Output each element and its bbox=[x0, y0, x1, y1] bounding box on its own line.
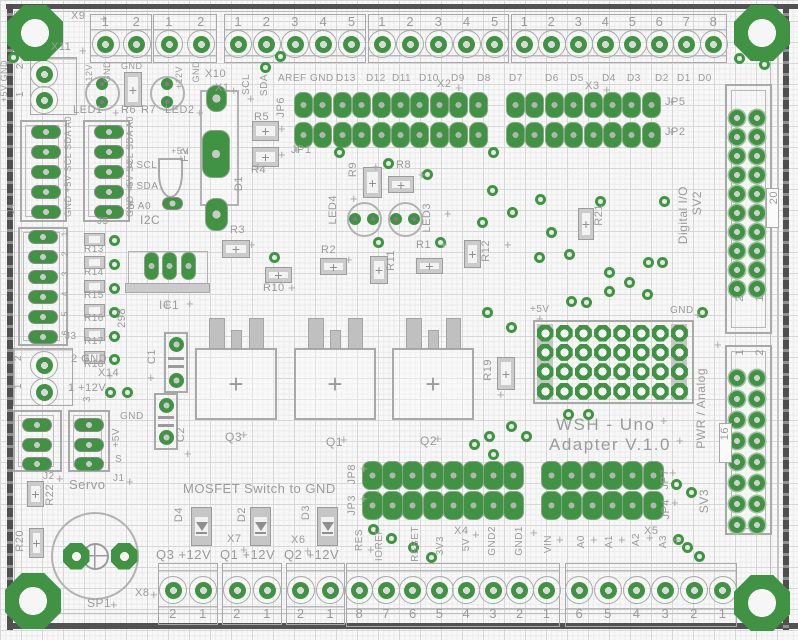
pin-number: 8 bbox=[707, 15, 721, 28]
via-pad[interactable] bbox=[109, 354, 120, 365]
header-pad[interactable] bbox=[582, 491, 603, 520]
capacitor-pad[interactable] bbox=[159, 430, 174, 445]
origin-cross-marker: + bbox=[440, 238, 448, 251]
via-pad[interactable] bbox=[686, 487, 697, 498]
header-pad[interactable] bbox=[622, 92, 641, 118]
connector-pad[interactable] bbox=[28, 250, 58, 264]
connector-pad[interactable] bbox=[31, 125, 61, 139]
via-pad[interactable] bbox=[109, 235, 120, 246]
resistor[interactable]: + bbox=[27, 481, 44, 507]
origin-cross-marker: + bbox=[56, 472, 64, 485]
resistor[interactable]: + bbox=[320, 258, 347, 275]
header-pad[interactable] bbox=[545, 92, 564, 118]
via-pad[interactable] bbox=[487, 185, 498, 196]
header-pad[interactable] bbox=[313, 92, 332, 118]
header-pad[interactable] bbox=[333, 92, 352, 118]
header-pad[interactable] bbox=[642, 122, 661, 148]
connector-pad[interactable] bbox=[28, 270, 58, 284]
header-pad[interactable] bbox=[372, 122, 391, 148]
silk-label: J2 bbox=[43, 472, 55, 482]
connector-pin-pad[interactable] bbox=[749, 454, 765, 470]
via-pad[interactable] bbox=[109, 259, 120, 270]
resistor[interactable]: + bbox=[222, 240, 250, 258]
connector-pin-pad[interactable] bbox=[729, 517, 745, 533]
silk-label: J3 bbox=[65, 332, 77, 342]
silk-label: R5 bbox=[254, 112, 269, 123]
pin-number: 2 bbox=[545, 15, 559, 28]
silk-label: Q2 bbox=[420, 435, 437, 447]
connector-pin-pad[interactable] bbox=[729, 129, 745, 145]
capacitor-pad[interactable] bbox=[169, 337, 184, 352]
terminal-pad[interactable] bbox=[123, 30, 151, 58]
connector-pin-pad[interactable] bbox=[749, 224, 765, 240]
header-pad[interactable] bbox=[443, 461, 464, 490]
capacitor-plate bbox=[168, 357, 184, 361]
header-pad[interactable] bbox=[642, 92, 661, 118]
pin-number: 1 bbox=[518, 15, 532, 28]
via-pad[interactable] bbox=[386, 533, 397, 544]
terminal-pad[interactable] bbox=[481, 30, 509, 58]
resistor[interactable]: + bbox=[124, 72, 142, 107]
terminal-pad[interactable] bbox=[623, 576, 651, 604]
via-pad[interactable] bbox=[566, 296, 577, 307]
silk-label: 1 bbox=[16, 91, 26, 97]
connector-pin-pad[interactable] bbox=[749, 186, 765, 202]
silk-label: D6 bbox=[545, 74, 559, 84]
pin-number: 4 bbox=[459, 607, 473, 620]
header-pad[interactable] bbox=[506, 122, 525, 148]
header-pad[interactable] bbox=[503, 491, 524, 520]
connector-pin-pad[interactable] bbox=[749, 391, 765, 407]
capacitor-plate bbox=[168, 365, 184, 369]
silk-label: R17 bbox=[84, 337, 104, 347]
header-pad[interactable] bbox=[603, 122, 622, 148]
terminal-pad[interactable] bbox=[426, 576, 454, 604]
diode[interactable] bbox=[191, 507, 212, 546]
via-pad[interactable] bbox=[624, 277, 635, 288]
via-pad[interactable] bbox=[734, 53, 745, 64]
led-pad[interactable] bbox=[408, 213, 420, 225]
header-pad[interactable] bbox=[561, 461, 582, 490]
mosfet-note: MOSFET Switch to GND bbox=[183, 482, 336, 495]
via-pad[interactable] bbox=[506, 322, 517, 333]
silk-label: X8 bbox=[135, 588, 149, 599]
header-pad[interactable] bbox=[469, 92, 488, 118]
terminal-pad[interactable] bbox=[338, 30, 366, 58]
transistor-package[interactable]: + bbox=[392, 348, 474, 420]
terminal-pad[interactable] bbox=[287, 576, 315, 604]
header-pad[interactable] bbox=[503, 461, 524, 490]
resistor[interactable]: + bbox=[464, 240, 481, 268]
terminal-pad[interactable] bbox=[399, 576, 427, 604]
terminal-pad[interactable] bbox=[700, 30, 728, 58]
header-pad[interactable] bbox=[622, 461, 643, 490]
pin-number: 4 bbox=[316, 15, 330, 28]
terminal-pad[interactable] bbox=[187, 30, 215, 58]
diode[interactable] bbox=[250, 507, 271, 546]
terminal-pad[interactable] bbox=[506, 576, 534, 604]
pin-number: 2 bbox=[230, 607, 244, 620]
terminal-pad[interactable] bbox=[30, 86, 58, 114]
silk-label: 16 bbox=[720, 427, 731, 440]
via-pad[interactable] bbox=[373, 237, 384, 248]
connector-pin-pad[interactable] bbox=[749, 205, 765, 221]
silk-label: D5 bbox=[570, 74, 584, 84]
silk-label: SDA bbox=[260, 74, 270, 96]
header-pad[interactable] bbox=[402, 461, 423, 490]
header-pad[interactable] bbox=[622, 491, 643, 520]
header-pad[interactable] bbox=[391, 92, 410, 118]
terminal-pad[interactable] bbox=[155, 30, 183, 58]
silk-label: 2 bbox=[735, 295, 746, 302]
via-pad[interactable] bbox=[682, 542, 693, 553]
via-pad[interactable] bbox=[488, 147, 499, 158]
connector-pin-pad[interactable] bbox=[749, 475, 765, 491]
origin-cross-marker: + bbox=[603, 83, 611, 96]
pin-number: 7 bbox=[680, 15, 694, 28]
header-pad[interactable] bbox=[469, 122, 488, 148]
connector-outline[interactable] bbox=[18, 227, 68, 346]
connector-pad[interactable] bbox=[31, 165, 61, 179]
silk-label: SV3 bbox=[698, 489, 710, 513]
silk-label: D4 bbox=[174, 507, 185, 522]
connector-pin-pad[interactable] bbox=[749, 110, 765, 126]
connector-pad[interactable] bbox=[28, 330, 58, 344]
pin-number: 1 bbox=[540, 607, 554, 620]
silk-label: IOREF bbox=[375, 528, 385, 561]
via-pad[interactable] bbox=[383, 158, 394, 169]
via-pad[interactable] bbox=[604, 286, 615, 297]
via-pad[interactable] bbox=[122, 387, 133, 398]
led-pad[interactable] bbox=[161, 78, 173, 90]
terminal-pad[interactable] bbox=[594, 576, 622, 604]
connector-pin-pad[interactable] bbox=[729, 148, 745, 164]
terminal-pad[interactable] bbox=[92, 30, 120, 58]
silk-label: X7 bbox=[227, 534, 241, 545]
connector-pin-pad[interactable] bbox=[749, 243, 765, 259]
origin-cross-marker: + bbox=[444, 207, 452, 220]
via-pad[interactable] bbox=[657, 257, 668, 268]
connector-pad[interactable] bbox=[94, 145, 124, 159]
led-pad[interactable] bbox=[390, 213, 402, 225]
terminal-pad[interactable] bbox=[646, 30, 674, 58]
connector-pin-pad[interactable] bbox=[729, 243, 745, 259]
pin-number: 1 bbox=[716, 607, 730, 620]
resistor[interactable]: + bbox=[388, 176, 414, 193]
silk-label: 2 bbox=[61, 251, 70, 257]
resistor[interactable]: + bbox=[29, 528, 44, 558]
header-pad[interactable] bbox=[333, 122, 352, 148]
header-pad[interactable] bbox=[602, 491, 623, 520]
header-pad[interactable] bbox=[449, 92, 468, 118]
connector-pad[interactable] bbox=[28, 230, 58, 244]
terminal-pad[interactable] bbox=[453, 30, 481, 58]
terminal-pad[interactable] bbox=[619, 30, 647, 58]
terminal-pad[interactable] bbox=[30, 351, 58, 379]
connector-pin-pad[interactable] bbox=[729, 475, 745, 491]
pin-number: 2 bbox=[130, 15, 144, 28]
connector-pad[interactable] bbox=[28, 290, 58, 304]
via-pad[interactable] bbox=[546, 227, 557, 238]
header-pad[interactable] bbox=[382, 491, 403, 520]
connector-pad[interactable] bbox=[22, 418, 52, 432]
silk-label: X6 bbox=[291, 535, 305, 546]
transistor-leg bbox=[330, 330, 341, 349]
origin-cross-marker: + bbox=[660, 414, 668, 427]
via-pad[interactable] bbox=[275, 51, 286, 62]
silk-label: D2 bbox=[237, 507, 248, 522]
connector-pad[interactable] bbox=[31, 205, 61, 219]
terminal-pad[interactable] bbox=[673, 30, 701, 58]
silk-label: R3 bbox=[230, 225, 245, 236]
silk-label: S bbox=[115, 455, 122, 465]
connector-pad[interactable] bbox=[94, 185, 124, 199]
header-pad[interactable] bbox=[391, 122, 410, 148]
pin-number: 2 bbox=[194, 15, 208, 28]
connector-pad[interactable] bbox=[74, 457, 104, 471]
via-pad[interactable] bbox=[671, 479, 682, 490]
via-pad[interactable] bbox=[334, 147, 345, 158]
header-pad[interactable] bbox=[463, 461, 484, 490]
header-pad[interactable] bbox=[423, 491, 444, 520]
header-pad[interactable] bbox=[352, 122, 371, 148]
connector-pad[interactable] bbox=[22, 438, 52, 452]
silk-label: R8 bbox=[396, 160, 411, 171]
via-pad[interactable] bbox=[659, 196, 670, 207]
connector-pin-pad[interactable] bbox=[729, 167, 745, 183]
header-pad[interactable] bbox=[602, 461, 623, 490]
fuse-pad[interactable] bbox=[205, 198, 228, 231]
via-pad[interactable] bbox=[109, 283, 120, 294]
ic-pad[interactable] bbox=[162, 252, 177, 280]
connector-pin-pad[interactable] bbox=[729, 186, 745, 202]
terminal-pad[interactable] bbox=[533, 576, 561, 604]
via-pad[interactable] bbox=[109, 331, 120, 342]
connector-pin-pad[interactable] bbox=[749, 412, 765, 428]
resistor[interactable]: + bbox=[252, 121, 279, 141]
capacitor-pad[interactable] bbox=[159, 398, 174, 413]
via-pad[interactable] bbox=[534, 252, 545, 263]
ic-pad[interactable] bbox=[181, 252, 196, 280]
via-pad[interactable] bbox=[507, 207, 518, 218]
silk-label: D2 bbox=[655, 74, 669, 84]
header-pad[interactable] bbox=[564, 122, 583, 148]
terminal-pad[interactable] bbox=[709, 576, 737, 604]
header-pad[interactable] bbox=[525, 92, 544, 118]
header-pad[interactable] bbox=[582, 461, 603, 490]
terminal-pad[interactable] bbox=[253, 576, 281, 604]
component-pad[interactable] bbox=[162, 197, 183, 210]
connector-pad[interactable] bbox=[28, 310, 58, 324]
origin-cross-marker: + bbox=[694, 308, 702, 321]
terminal-pad[interactable] bbox=[538, 30, 566, 58]
header-pad[interactable] bbox=[423, 461, 444, 490]
led-pad[interactable] bbox=[349, 213, 361, 225]
via-pad[interactable] bbox=[535, 194, 546, 205]
header-pad[interactable] bbox=[483, 461, 504, 490]
header-pad[interactable] bbox=[541, 461, 562, 490]
header-pad[interactable] bbox=[430, 122, 449, 148]
led-pad[interactable] bbox=[367, 213, 379, 225]
connector-pad[interactable] bbox=[74, 418, 104, 432]
terminal-pad[interactable] bbox=[159, 576, 187, 604]
connector-pin-pad[interactable] bbox=[749, 129, 765, 145]
via-pad[interactable] bbox=[581, 297, 592, 308]
via-pad[interactable] bbox=[604, 267, 615, 278]
connector-pin-pad[interactable] bbox=[749, 370, 765, 386]
header-pad[interactable] bbox=[294, 92, 313, 118]
via-pad[interactable] bbox=[694, 551, 705, 562]
header-pad[interactable] bbox=[410, 122, 429, 148]
silk-label: X5 bbox=[644, 526, 658, 537]
pin-number: 5 bbox=[626, 15, 640, 28]
via-pad[interactable] bbox=[564, 249, 575, 260]
connector-pin-pad[interactable] bbox=[749, 517, 765, 533]
silk-label: C2 bbox=[176, 427, 187, 442]
connector-pin-pad[interactable] bbox=[729, 370, 745, 386]
header-pad[interactable] bbox=[564, 92, 583, 118]
via-pad[interactable] bbox=[643, 257, 654, 268]
connector-pin-pad[interactable] bbox=[749, 167, 765, 183]
connector-pad[interactable] bbox=[94, 125, 124, 139]
via-pad[interactable] bbox=[583, 409, 594, 420]
silk-label: X2 bbox=[437, 79, 451, 90]
silk-label: GND2 bbox=[488, 526, 498, 556]
terminal-pad[interactable] bbox=[30, 60, 58, 88]
silk-label: J4 bbox=[7, 203, 17, 215]
connector-pin-pad[interactable] bbox=[729, 224, 745, 240]
header-pad[interactable] bbox=[313, 122, 332, 148]
silk-label: 3 bbox=[61, 271, 70, 277]
via-pad[interactable] bbox=[482, 307, 493, 318]
resistor[interactable]: + bbox=[497, 357, 515, 390]
via-pad[interactable] bbox=[260, 62, 271, 73]
via-pad[interactable] bbox=[469, 439, 480, 450]
connector-pad[interactable] bbox=[31, 185, 61, 199]
terminal-pad[interactable] bbox=[30, 378, 58, 406]
connector-pad[interactable] bbox=[74, 438, 104, 452]
connector-pad[interactable] bbox=[22, 457, 52, 471]
header-pad[interactable] bbox=[622, 122, 641, 148]
silk-label: D9 bbox=[451, 74, 465, 84]
transistor-package[interactable]: + bbox=[294, 348, 376, 420]
diode[interactable] bbox=[317, 507, 338, 546]
via-pad[interactable] bbox=[563, 409, 574, 420]
terminal-pad[interactable] bbox=[223, 576, 251, 604]
fuse-pad[interactable] bbox=[202, 130, 230, 178]
mounting-hole[interactable] bbox=[5, 573, 61, 629]
header-pad[interactable] bbox=[561, 491, 582, 520]
silk-label: X1 bbox=[215, 83, 229, 94]
terminal-pad[interactable] bbox=[680, 576, 708, 604]
header-pad[interactable] bbox=[449, 122, 468, 148]
via-pad[interactable] bbox=[8, 52, 19, 63]
header-pad[interactable] bbox=[430, 92, 449, 118]
connector-pin-pad[interactable] bbox=[749, 148, 765, 164]
header-pad[interactable] bbox=[410, 92, 429, 118]
mounting-hole[interactable] bbox=[734, 5, 790, 61]
origin-cross-marker: + bbox=[676, 434, 684, 447]
header-pad[interactable] bbox=[463, 491, 484, 520]
via-pad[interactable] bbox=[484, 431, 495, 442]
connector-pin-pad[interactable] bbox=[729, 496, 745, 512]
connector-pad[interactable] bbox=[94, 165, 124, 179]
via-pad[interactable] bbox=[642, 289, 653, 300]
header-pad[interactable] bbox=[352, 92, 371, 118]
via-pad[interactable] bbox=[477, 217, 488, 228]
connector-pin-pad[interactable] bbox=[729, 262, 745, 278]
silk-label: JP8 bbox=[347, 464, 358, 484]
origin-cross-marker: + bbox=[196, 106, 204, 119]
ic-pad[interactable] bbox=[144, 252, 159, 280]
header-pad[interactable] bbox=[584, 122, 603, 148]
pin-number: 6 bbox=[653, 15, 667, 28]
silk-label: IC1 bbox=[159, 299, 179, 311]
resistor[interactable]: + bbox=[416, 258, 443, 274]
header-pad[interactable] bbox=[382, 461, 403, 490]
via-pad[interactable] bbox=[488, 449, 499, 460]
transistor-leg bbox=[209, 318, 225, 349]
terminal-pad[interactable] bbox=[565, 30, 593, 58]
connector-pin-pad[interactable] bbox=[749, 433, 765, 449]
terminal-pad[interactable] bbox=[479, 576, 507, 604]
terminal-pad[interactable] bbox=[372, 576, 400, 604]
silk-label: R21 bbox=[594, 204, 605, 226]
resistor[interactable]: + bbox=[578, 208, 594, 240]
connector-pin-pad[interactable] bbox=[729, 110, 745, 126]
header-pad[interactable] bbox=[506, 92, 525, 118]
silk-label: Digital I/O bbox=[677, 186, 689, 244]
mounting-hole[interactable] bbox=[734, 575, 790, 631]
pcb-canvas[interactable]: WSH - Uno Adapter V.1.0 MOSFET Switch to… bbox=[0, 0, 798, 640]
pin-number: 8 bbox=[352, 607, 366, 620]
terminal-pad[interactable] bbox=[368, 30, 396, 58]
via-pad[interactable] bbox=[521, 431, 532, 442]
silk-label: R2 bbox=[321, 245, 336, 256]
header-pad[interactable] bbox=[545, 122, 564, 148]
capacitor-pad[interactable] bbox=[169, 373, 184, 388]
terminal-pad[interactable] bbox=[592, 30, 620, 58]
connector-pin-pad[interactable] bbox=[729, 391, 745, 407]
via-pad[interactable] bbox=[759, 59, 770, 70]
via-pad[interactable] bbox=[269, 252, 280, 263]
via-pad[interactable] bbox=[506, 421, 517, 432]
terminal-pad[interactable] bbox=[425, 30, 453, 58]
silk-label: Q2 +12V bbox=[284, 548, 339, 561]
terminal-pad[interactable] bbox=[224, 30, 252, 58]
terminal-pad[interactable] bbox=[511, 30, 539, 58]
silk-label: SCL bbox=[242, 74, 252, 95]
header-pad[interactable] bbox=[584, 92, 603, 118]
silk-label: +12V bbox=[85, 64, 94, 87]
header-pad[interactable] bbox=[525, 122, 544, 148]
connector-pin-pad[interactable] bbox=[749, 262, 765, 278]
header-pad[interactable] bbox=[483, 491, 504, 520]
silk-label: D10 bbox=[419, 74, 439, 84]
silk-label: SP1 bbox=[87, 597, 111, 609]
transistor-package[interactable]: + bbox=[195, 348, 277, 420]
connector-pin-pad[interactable] bbox=[729, 205, 745, 221]
header-pad[interactable] bbox=[402, 491, 423, 520]
header-pad[interactable] bbox=[541, 491, 562, 520]
header-pad[interactable] bbox=[443, 491, 464, 520]
pin-number: 3 bbox=[658, 607, 672, 620]
header-pad[interactable] bbox=[372, 92, 391, 118]
connector-pad[interactable] bbox=[31, 145, 61, 159]
silk-label: JP4 bbox=[661, 499, 672, 519]
terminal-pad[interactable] bbox=[189, 576, 217, 604]
connector-pin-pad[interactable] bbox=[749, 496, 765, 512]
